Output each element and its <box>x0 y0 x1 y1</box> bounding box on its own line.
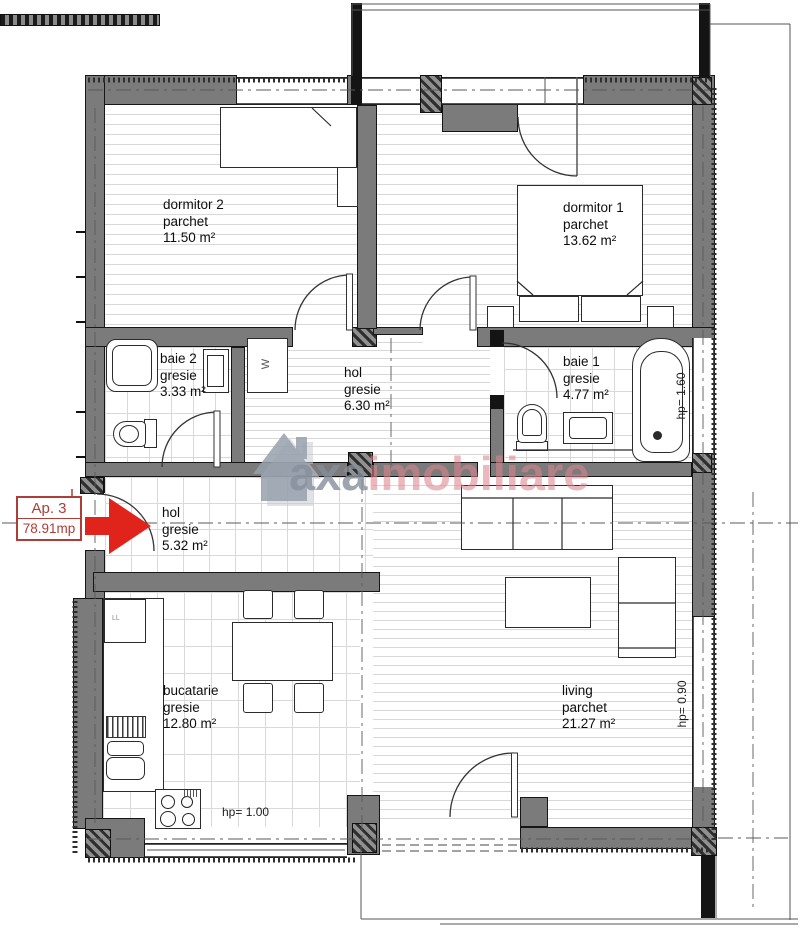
balcony-top-pillar-right <box>699 3 710 77</box>
parapet-note-kitchen: hp= 1.00 <box>222 805 269 819</box>
watermark: axaimobiliare <box>289 452 589 496</box>
wall-hatch-window-corner <box>420 75 442 113</box>
stove-burner <box>160 811 176 827</box>
threshold-dashes <box>382 845 518 851</box>
wall-top-left <box>85 75 237 105</box>
room-label-hol-inferior: hol gresie 5.32 m² <box>162 505 208 555</box>
balcony-top-pillar-left <box>351 3 362 77</box>
wall-kitchen-north <box>93 572 380 592</box>
room-finish: gresie <box>163 700 219 717</box>
wall-hatch-right-mid <box>692 453 712 473</box>
wall-pillar-entrance <box>80 477 104 494</box>
wall-hatch-bottom-left <box>85 829 111 858</box>
room-finish: gresie <box>344 382 390 399</box>
chair <box>243 590 273 619</box>
nightstand <box>647 306 674 328</box>
shower-cabin-inner <box>112 345 152 386</box>
room-label-baie-1: baie 1 gresie 4.77 m² <box>563 354 609 404</box>
stove-burner <box>181 796 193 808</box>
room-finish: gresie <box>160 368 206 385</box>
room-area: 12.80 m² <box>163 716 219 733</box>
room-name: baie 1 <box>563 354 609 371</box>
room-area: 13.62 m² <box>563 233 624 250</box>
wall-parapet-dormitor-1 <box>442 103 518 132</box>
watermark-brand-secondary: imobiliare <box>367 447 589 500</box>
pillow <box>581 296 641 322</box>
chair <box>294 590 324 619</box>
window-bucatarie <box>145 843 347 858</box>
room-name: hol <box>162 505 208 522</box>
armchair <box>618 557 676 658</box>
apartment-total-area: 78.91mp <box>18 519 80 539</box>
toilet-bowl-inner <box>119 425 139 443</box>
room-name: living <box>562 683 615 700</box>
nightstand <box>487 306 514 328</box>
stove-burner <box>182 813 195 826</box>
room-label-hol-superior: hol gresie 6.30 m² <box>344 365 390 415</box>
room-area: 5.32 m² <box>162 538 208 555</box>
dining-table <box>232 622 333 681</box>
apartment-label: Ap. 3 <box>18 498 80 519</box>
apartment-marker: Ap. 3 78.91mp <box>16 496 82 541</box>
room-area: 3.33 m² <box>160 384 206 401</box>
room-area: 6.30 m² <box>344 398 390 415</box>
watermark-brand-primary: axa <box>289 447 367 500</box>
room-finish: parchet <box>563 217 624 234</box>
balcony-top-pillar-base <box>351 75 362 105</box>
room-name: hol <box>344 365 390 382</box>
toilet-bowl-inner <box>522 409 542 436</box>
stove-grate <box>184 790 198 797</box>
wall-baie-2-east <box>231 347 245 464</box>
wall-right-mid <box>692 453 715 617</box>
opening-baie-1-door <box>490 347 504 395</box>
room-area: 21.27 m² <box>562 716 615 733</box>
bed-single <box>220 107 357 168</box>
parapet-note-bath: hp= 1.60 <box>674 364 688 428</box>
balcony-bottom-pillar <box>701 856 715 918</box>
room-area: 11.50 m² <box>163 230 224 247</box>
opening-entrance <box>85 493 105 550</box>
opening-dormitor-1-door <box>423 329 477 345</box>
opening-balcony-door-sill <box>380 825 520 845</box>
wall-right-lower <box>692 785 715 829</box>
wall-stub-baie-1-top <box>490 330 504 347</box>
nightstand <box>337 167 358 207</box>
window-dormitor-2 <box>237 77 347 105</box>
room-name: bucatarie <box>163 683 219 700</box>
room-finish: parchet <box>562 700 615 717</box>
window-baie-1 <box>692 338 715 453</box>
kitchen-sink-basin <box>107 741 144 756</box>
wall-hatch-bottom-right <box>691 827 717 856</box>
wall-hatch-top-right <box>692 77 712 105</box>
pillow <box>519 296 579 322</box>
wall-living-south <box>520 827 692 849</box>
room-name: baie 2 <box>160 351 206 368</box>
window-living <box>692 617 715 787</box>
chair <box>294 683 324 713</box>
wall-dormitor-2-east <box>357 105 377 329</box>
sink-inner <box>207 355 224 387</box>
room-label-dormitor-1: dormitor 1 parchet 13.62 m² <box>563 200 624 250</box>
room-name: dormitor 1 <box>563 200 624 217</box>
room-label-living: living parchet 21.27 m² <box>562 683 615 733</box>
room-finish: gresie <box>162 522 208 539</box>
fridge <box>104 599 146 643</box>
stove-burner <box>161 795 175 809</box>
sink-inner <box>569 417 607 439</box>
wall-living-south-jut <box>520 797 548 827</box>
washing-machine-label: W <box>260 359 272 369</box>
room-area: 4.77 m² <box>563 387 609 404</box>
wall-left-lower <box>73 598 103 829</box>
wall-left-upper <box>85 75 105 493</box>
wall-thin-dormitor-1 <box>373 327 423 335</box>
room-finish: gresie <box>563 371 609 388</box>
room-label-baie-2: baie 2 gresie 3.33 m² <box>160 351 206 401</box>
room-finish: parchet <box>163 214 224 231</box>
kitchen-sink-drainer <box>106 716 146 738</box>
kitchen-sink-basin <box>106 757 145 780</box>
floor-plan: W LL <box>0 0 800 932</box>
room-label-dormitor-2: dormitor 2 parchet 11.50 m² <box>163 197 224 247</box>
room-name: dormitor 2 <box>163 197 224 214</box>
bathtub-drain <box>653 431 662 440</box>
window-dormitor-1-right <box>442 77 583 105</box>
parapet-note-living: hp= 0.90 <box>675 672 689 736</box>
neighbour-wall-strip <box>0 14 160 26</box>
fridge-label: LL <box>112 615 120 622</box>
wall-right-upper <box>692 75 715 338</box>
opening-dormitor-2-door <box>293 329 352 345</box>
chair <box>243 683 273 713</box>
wall-hatch-kitchen-balcony <box>352 823 377 853</box>
wall-stub-baie-1-bottom <box>490 395 504 409</box>
window-dormitor-1-left <box>352 77 420 105</box>
coffee-table <box>505 577 591 628</box>
room-label-bucatarie: bucatarie gresie 12.80 m² <box>163 683 219 733</box>
